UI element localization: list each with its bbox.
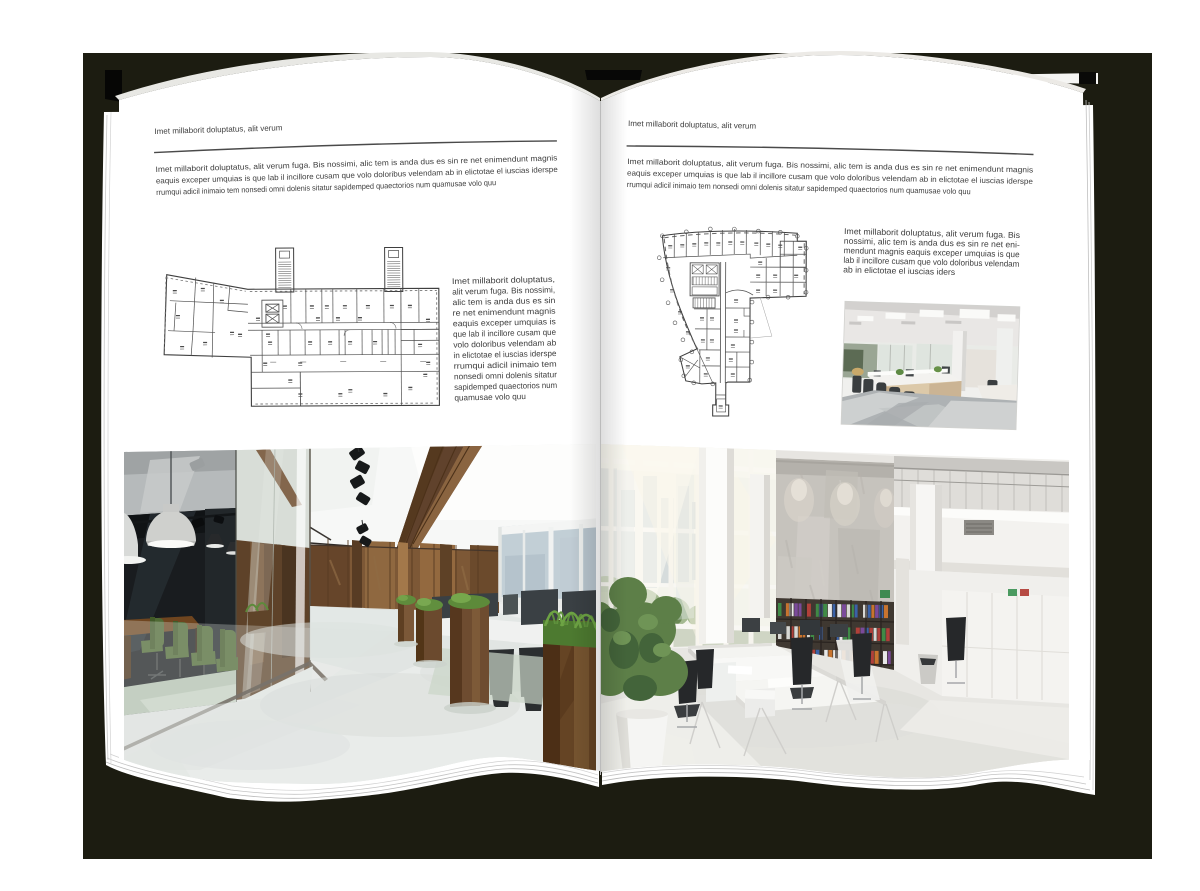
svg-text:quamusae volo quu: quamusae volo quu	[454, 392, 526, 403]
